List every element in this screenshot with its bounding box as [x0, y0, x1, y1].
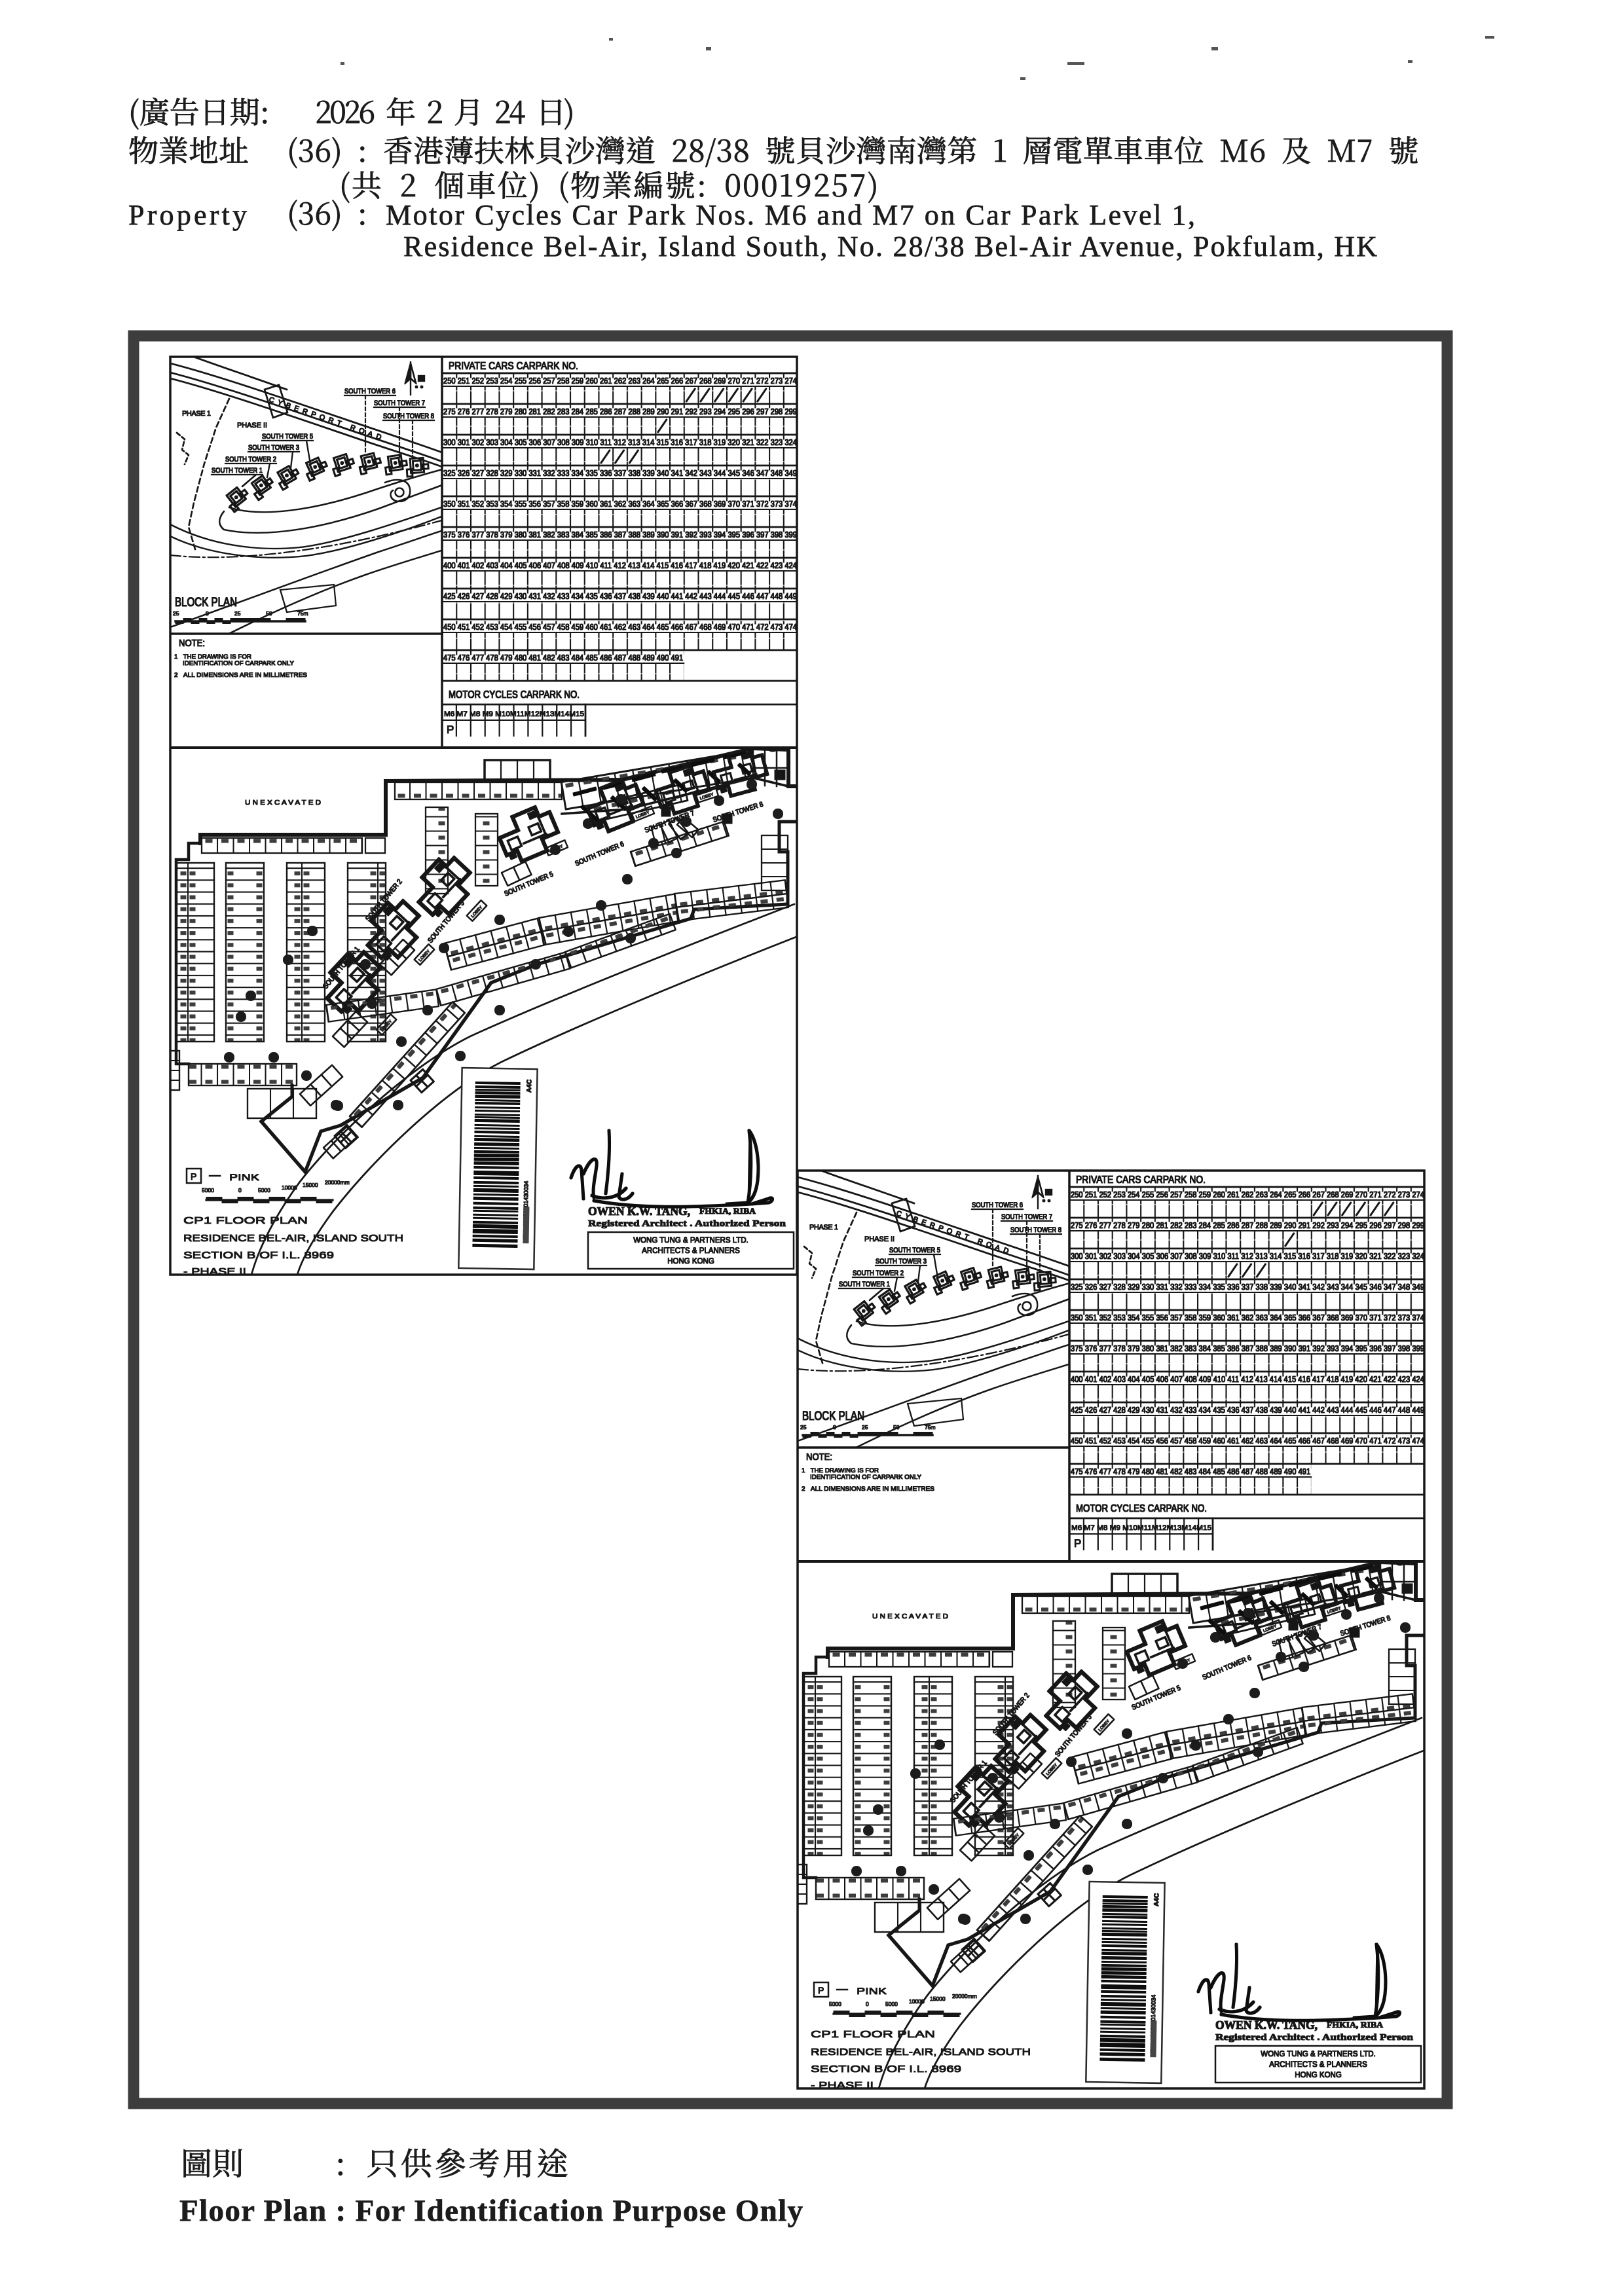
svg-text:Floor Plan : For Identificatio: Floor Plan : For Identification Purpose … [179, 2194, 803, 2228]
svg-text:Motor Cycles Car Park Nos. M6: Motor Cycles Car Park Nos. M6 and M7 on … [386, 199, 1195, 231]
svg-text:Residence Bel-Air, Island Sout: Residence Bel-Air, Island South, No. 28/… [403, 230, 1377, 263]
svg-text:Property: Property [128, 199, 247, 231]
